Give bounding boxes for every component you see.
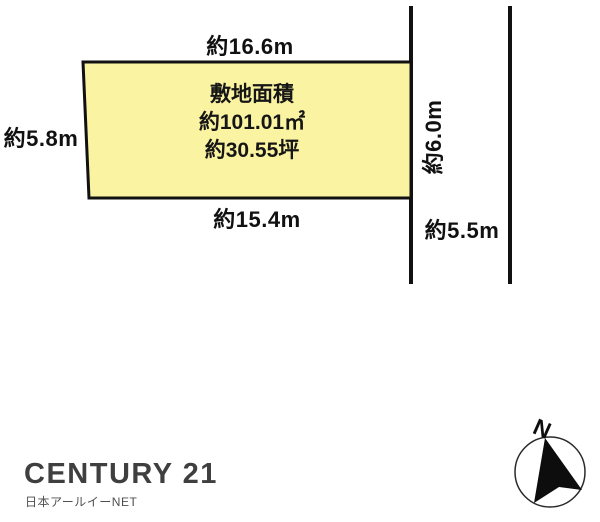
site-area-title: 敷地面積: [199, 81, 305, 109]
site-info: 敷地面積 約101.01㎡ 約30.55坪: [199, 81, 305, 165]
dimension-label-top: 約16.6m: [206, 29, 293, 61]
land-plot-diagram: 約16.6m 約5.8m 約15.4m 約6.0m 約5.5m 敷地面積 約10…: [0, 0, 600, 522]
century21-logo: CENTURY 21: [24, 458, 218, 491]
dimension-label-bottom: 約15.4m: [213, 202, 300, 234]
site-area-sqm: 約101.01㎡: [199, 109, 305, 137]
logo-subtext: 日本アールイーNET: [25, 493, 137, 510]
dimension-label-right: 約6.0m: [416, 100, 448, 175]
dimension-label-left: 約5.8m: [4, 121, 79, 153]
site-area-tsubo: 約30.55坪: [199, 137, 305, 165]
diagram-shapes: [0, 0, 600, 522]
compass: [515, 437, 585, 507]
dimension-label-road: 約5.5m: [425, 213, 500, 245]
